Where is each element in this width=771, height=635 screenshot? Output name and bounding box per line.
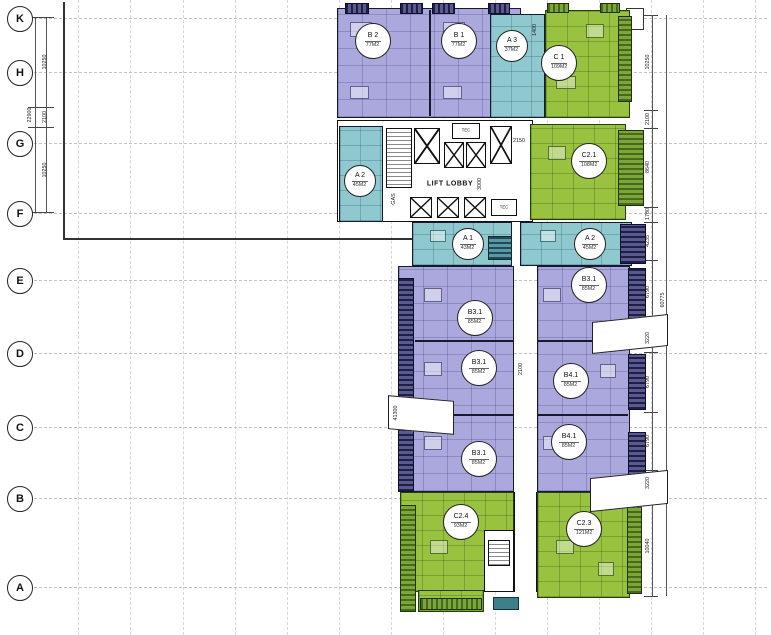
grid-line-v	[130, 0, 131, 635]
unit-area: 37M2	[505, 47, 519, 54]
unit-badge-b41-r2: B4.185M2	[553, 363, 589, 399]
furniture	[540, 230, 556, 242]
tec-room: TEC	[491, 199, 517, 216]
furniture	[443, 86, 462, 99]
dimension-tick	[644, 128, 658, 129]
unit-code: B 2	[365, 32, 382, 42]
dimension-tick	[644, 110, 658, 111]
unit-area: 85M2	[472, 369, 486, 376]
dim-right-1: 10250	[645, 54, 650, 69]
unit-code: C2.1	[579, 152, 600, 162]
unit-badge-c24: C2.493M2	[443, 504, 479, 540]
balcony-hatch	[547, 3, 569, 13]
tec-label: TEC	[462, 129, 470, 133]
dim-right-3: 8640	[645, 161, 650, 173]
dimension-tick	[644, 222, 658, 223]
unit-badge-a3: A 337M2	[496, 30, 528, 62]
grid-label: K	[16, 13, 24, 25]
grid-label: E	[16, 275, 23, 287]
furniture	[548, 146, 566, 160]
grid-bubble-d: D	[7, 341, 33, 367]
furniture	[424, 288, 442, 302]
dim-left-3: 10250	[42, 162, 47, 177]
floor-plan-canvas: K H G F E D C B A 22900 10250 2100 10250…	[0, 0, 771, 635]
unit-badge-b2: B 277M2	[355, 23, 391, 59]
furniture	[424, 362, 442, 376]
stair-core	[386, 128, 412, 188]
unit-badge-b31-l3: B3.185M2	[461, 441, 497, 477]
grid-bubble-e: E	[7, 268, 33, 294]
grid-label: F	[17, 208, 24, 220]
grid-label: D	[16, 348, 24, 360]
unit-code: A 2	[352, 172, 368, 182]
dimension-tick	[644, 412, 658, 413]
dim-2150: 2150	[513, 138, 525, 143]
furniture	[598, 562, 614, 576]
grid-line-v	[183, 0, 184, 635]
unit-code: C2.3	[574, 520, 595, 530]
balcony-hatch	[398, 278, 414, 492]
balcony-hatch	[628, 354, 646, 410]
dim-2100: 2100	[518, 363, 523, 375]
grid-line-v	[78, 0, 79, 635]
stair-flight	[488, 540, 510, 566]
balcony-hatch	[627, 500, 642, 594]
grid-label: C	[16, 422, 24, 434]
dim-left-1: 10250	[42, 54, 47, 69]
unit-area: 85M2	[472, 460, 486, 467]
dim-3000: 3000	[477, 178, 482, 190]
balcony-hatch	[618, 16, 632, 102]
unit-badge-a1: A 143M2	[452, 228, 484, 260]
lift-lobby-label: LIFT LOBBY	[427, 181, 473, 188]
dim-right-5: 4235	[645, 235, 650, 247]
awning-outline	[592, 314, 668, 354]
unit-code: B4.1	[559, 433, 579, 443]
unit-code: B3.1	[469, 359, 489, 369]
unit-divider	[415, 340, 514, 342]
unit-badge-b41-r3: B4.185M2	[551, 424, 587, 460]
dim-right-11: 10040	[645, 538, 650, 553]
balcony-hatch	[600, 3, 620, 13]
balcony-hatch	[400, 3, 423, 14]
unit-code: A 2	[582, 235, 598, 245]
grid-bubble-a: A	[7, 575, 33, 601]
balcony-hatch	[432, 3, 455, 14]
grid-label: B	[16, 493, 24, 505]
unit-badge-a2: A 245M2	[344, 165, 376, 197]
lift-shaft	[490, 126, 512, 164]
unit-area: 85M2	[564, 382, 578, 389]
dim-right-6: 6790	[645, 286, 650, 298]
grid-line-v	[703, 0, 704, 635]
unit-badge-b31-l2: B3.185M2	[461, 350, 497, 386]
unit-area: 121M2	[576, 530, 593, 537]
dimension-tick	[28, 127, 54, 128]
dim-left-2: 2100	[42, 111, 47, 123]
gas-label: GAS	[391, 193, 396, 204]
unit-code: B4.1	[561, 372, 581, 382]
balcony-teal	[493, 597, 519, 610]
lift-shaft	[437, 197, 459, 218]
unit-area: 45M2	[353, 182, 367, 189]
furniture	[430, 540, 448, 554]
dimension-line	[652, 15, 653, 596]
grid-label: G	[16, 138, 25, 150]
balcony-hatch	[400, 505, 416, 612]
dimension-tick	[644, 596, 658, 597]
balcony-hatch	[420, 598, 482, 610]
tec-label: TEC	[500, 205, 508, 209]
unit-code: C 1	[551, 54, 568, 64]
grid-bubble-g: G	[7, 131, 33, 157]
dim-right-10: 3220	[645, 477, 650, 489]
dim-right-overall: 60775	[660, 292, 665, 307]
lift-shaft	[464, 197, 486, 218]
grid-bubble-c: C	[7, 415, 33, 441]
tec-room: TEC	[452, 123, 480, 139]
grid-line-v	[235, 0, 236, 635]
grid-label: A	[16, 582, 24, 594]
lift-shaft	[410, 197, 432, 218]
unit-code: B3.1	[469, 450, 489, 460]
dim-right-9: 6790	[645, 435, 650, 447]
unit-badge-b31-r1: B3.185M2	[571, 267, 607, 303]
dim-right-7: 3220	[645, 332, 650, 344]
balcony-hatch	[620, 224, 646, 264]
unit-area: 77M2	[452, 42, 466, 49]
balcony-hatch	[618, 130, 644, 206]
balcony-hatch	[345, 3, 369, 14]
dimension-tick	[644, 15, 658, 16]
grid-bubble-f: F	[7, 201, 33, 227]
furniture	[350, 86, 369, 99]
party-wall	[429, 10, 431, 116]
unit-area: 85M2	[562, 443, 576, 450]
unit-area: 108M2	[581, 162, 598, 169]
dim-right-4: 1780	[645, 208, 650, 220]
unit-area: 93M2	[454, 523, 468, 530]
unit-code: B3.1	[579, 276, 599, 286]
dim-right-8: 6790	[645, 376, 650, 388]
terrace-outline	[63, 238, 413, 240]
awning-outline	[590, 470, 668, 512]
dim-1400: 1400	[532, 24, 537, 36]
unit-badge-a2-right: A 245M2	[574, 228, 606, 260]
balcony-hatch	[488, 236, 512, 260]
unit-badge-b1: B 177M2	[441, 23, 477, 59]
dimension-line	[35, 18, 36, 213]
grid-bubble-b: B	[7, 486, 33, 512]
dimension-tick	[644, 352, 658, 353]
terrace-outline	[63, 2, 65, 238]
lift-shaft	[414, 128, 440, 164]
balcony-hatch	[488, 3, 510, 14]
dim-41300: 41300	[393, 405, 398, 420]
unit-badge-c21: C2.1108M2	[571, 143, 607, 179]
unit-code: C2.4	[451, 513, 472, 523]
furniture	[543, 288, 561, 302]
lift-shaft	[444, 142, 464, 168]
grid-bubble-k: K	[7, 6, 33, 32]
unit-divider	[537, 414, 628, 416]
unit-code: B 1	[451, 32, 468, 42]
lift-shaft	[466, 142, 486, 168]
furniture	[430, 230, 446, 242]
dim-left-overall: 22900	[27, 107, 32, 122]
unit-code: B3.1	[465, 309, 485, 319]
unit-badge-c23: C2.3121M2	[566, 511, 602, 547]
unit-area: 109M2	[551, 64, 568, 71]
unit-area: 85M2	[582, 286, 596, 293]
furniture	[586, 24, 604, 38]
grid-line-v	[755, 0, 756, 635]
unit-area: 85M2	[468, 319, 482, 326]
grid-line-v	[287, 0, 288, 635]
unit-badge-c1: C 1109M2	[541, 45, 577, 81]
dimension-tick	[644, 260, 658, 261]
unit-code: A 3	[504, 37, 520, 47]
furniture	[424, 436, 442, 450]
unit-area: 45M2	[583, 245, 597, 252]
dimension-line	[666, 15, 667, 596]
corridor	[514, 492, 537, 592]
unit-area: 43M2	[461, 245, 475, 252]
grid-label: H	[16, 67, 24, 79]
grid-bubble-h: H	[7, 60, 33, 86]
furniture	[600, 364, 616, 378]
unit-area: 77M2	[366, 42, 380, 49]
unit-code: A 1	[460, 235, 476, 245]
dim-right-2: 2100	[645, 113, 650, 125]
unit-badge-b31-l1: B3.185M2	[457, 300, 493, 336]
